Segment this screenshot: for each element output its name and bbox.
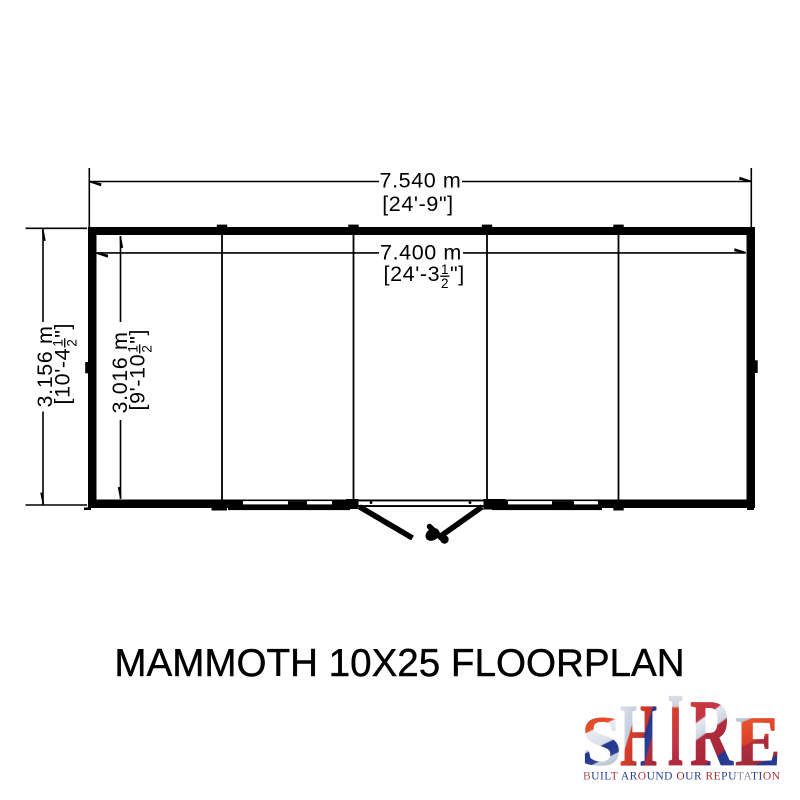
svg-text:1: 1	[126, 345, 141, 353]
svg-text:2: 2	[441, 276, 449, 291]
svg-text:E: E	[735, 703, 781, 781]
svg-text:2: 2	[65, 339, 80, 347]
svg-text:7.400 m: 7.400 m	[380, 240, 462, 264]
svg-text:1: 1	[51, 339, 66, 347]
svg-text:"]: "]	[126, 329, 150, 344]
svg-text:7.540 m: 7.540 m	[380, 169, 462, 193]
svg-text:[24'-9"]: [24'-9"]	[382, 192, 454, 216]
svg-text:[24'-3: [24'-3	[384, 262, 441, 286]
svg-text:[10'-4: [10'-4	[51, 348, 75, 405]
svg-text:S: S	[582, 703, 622, 781]
svg-text:"]: "]	[450, 262, 465, 286]
svg-text:BUILT AROUND OUR REPUTATION: BUILT AROUND OUR REPUTATION	[583, 771, 781, 783]
svg-text:[9'-10: [9'-10	[126, 354, 150, 411]
svg-text:"]: "]	[51, 323, 75, 338]
svg-text:2: 2	[140, 345, 155, 353]
svg-text:MAMMOTH 10X25 FLOORPLAN: MAMMOTH 10X25 FLOORPLAN	[114, 642, 684, 685]
svg-text:1: 1	[441, 262, 449, 277]
